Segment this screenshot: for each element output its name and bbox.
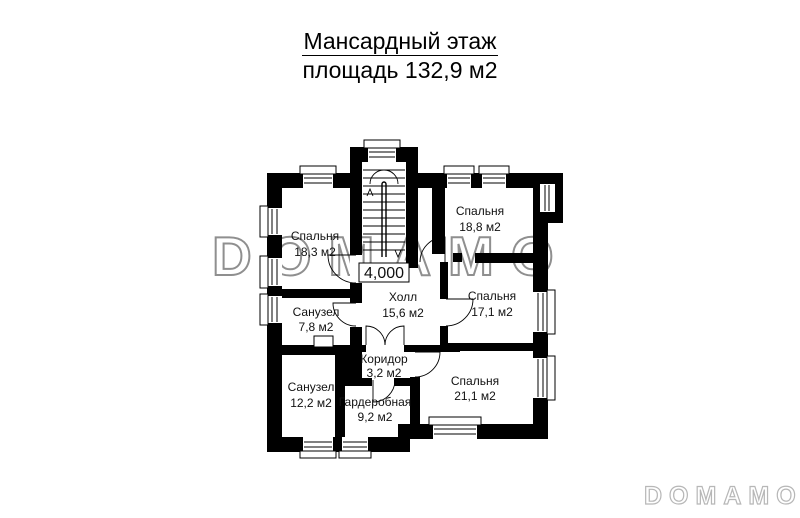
room-corridor-name: Коридор xyxy=(360,352,408,366)
title-floor-area: площадь 132,9 м2 xyxy=(240,57,560,83)
title-floor-name: Мансардный этаж xyxy=(240,28,560,54)
room-bedroom-211-area: 21,1 м2 xyxy=(454,389,496,403)
room-bedroom-183-name: Спальня xyxy=(291,229,339,243)
room-bedroom-171-area: 17,1 м2 xyxy=(471,305,513,319)
staircase xyxy=(363,170,405,257)
room-bath-122-area: 12,2 м2 xyxy=(290,396,332,410)
room-bedroom-188-name: Спальня xyxy=(456,204,504,218)
room-bedroom-211-name: Спальня xyxy=(451,374,499,388)
room-bedroom-171-name: Спальня xyxy=(468,289,516,303)
room-corridor-area: 3,2 м2 xyxy=(367,366,402,380)
chimney-notch xyxy=(540,184,555,212)
elevation-mark: 4,000 xyxy=(359,263,409,282)
elevation-value: 4,000 xyxy=(364,265,404,282)
stair-up-arrow xyxy=(367,189,373,196)
room-wardrobe-name: Гардеробная xyxy=(339,395,412,409)
watermark-corner: DOMAMO xyxy=(644,482,800,511)
room-wardrobe-area: 9,2 м2 xyxy=(358,410,393,424)
room-bath-122-name: Санузел xyxy=(288,380,335,394)
room-bath-78-name: Санузел xyxy=(293,305,340,319)
stair-down-arrow xyxy=(395,250,401,257)
room-hall-area: 15,6 м2 xyxy=(382,306,424,320)
room-bedroom-183-area: 18,3 м2 xyxy=(294,245,336,259)
duct-box xyxy=(314,336,333,347)
room-labels: Спальня 18,3 м2 Спальня 18,8 м2 Санузел … xyxy=(288,204,516,424)
room-bath-78-area: 7,8 м2 xyxy=(299,320,334,334)
room-hall-name: Холл xyxy=(389,290,417,304)
title-divider-line xyxy=(302,55,498,56)
room-bedroom-188-area: 18,8 м2 xyxy=(459,220,501,234)
page-title: Мансардный этаж площадь 132,9 м2 xyxy=(240,28,560,83)
